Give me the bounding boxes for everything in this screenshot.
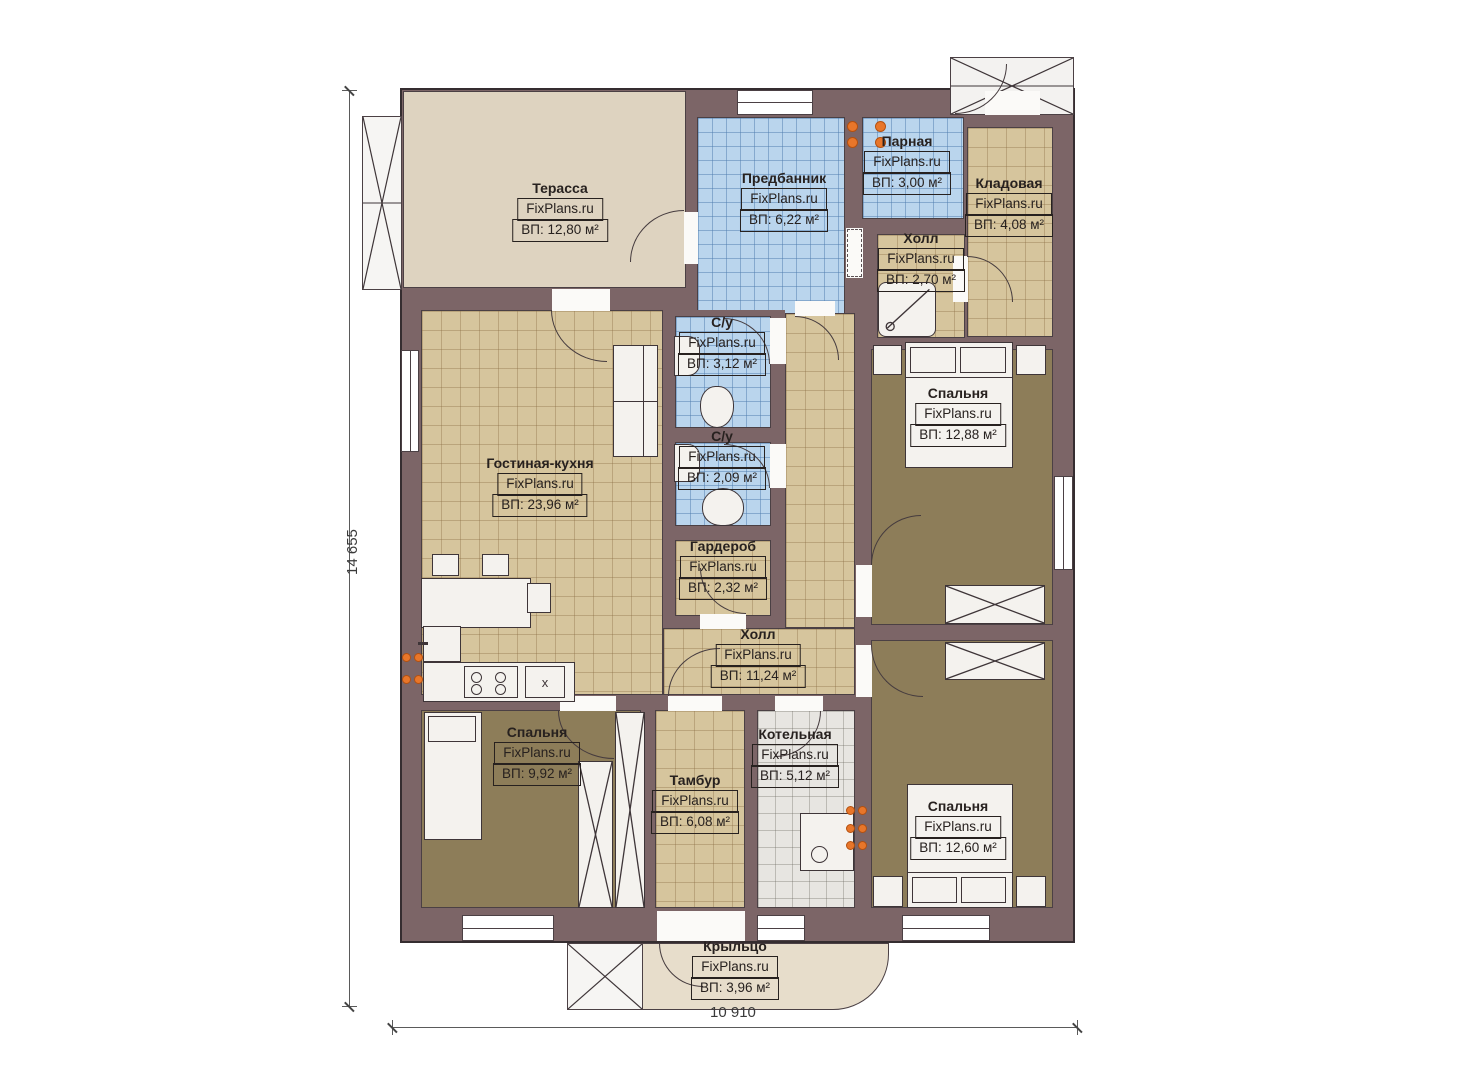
radiator-dot [414,675,423,684]
room-label-bedroom1: Спальня FixPlans.ru ВП: 12,88 м² [910,385,1006,447]
area-box: ВП: 12,80 м² [512,219,608,242]
sofa [613,345,658,457]
radiator-dot [846,841,855,850]
brand-box: FixPlans.ru [652,790,738,813]
brand-box: FixPlans.ru [517,198,603,221]
nightstand [873,345,902,375]
chair [527,583,551,613]
area-box: ВП: 11,24 м² [711,665,806,688]
floor-plan: x [0,0,1473,1080]
area-box: ВП: 12,88 м² [910,424,1006,447]
brand-box: FixPlans.ru [494,742,580,765]
window-right-bedroom1 [1054,476,1073,570]
room-label-predbannik: Предбанник FixPlans.ru ВП: 6,22 м² [740,170,828,232]
area-box: ВП: 2,09 м² [678,467,766,490]
door-terrace-living [552,289,610,311]
area-box: ВП: 3,12 м² [678,353,766,376]
wardrobe [945,585,1045,624]
corridor-floor [785,313,855,628]
area-box: ВП: 4,08 м² [965,214,1053,237]
room-name: Холл [903,230,938,246]
window-bottom-bedroom3 [902,915,990,941]
door-tambur [668,696,722,711]
brand-box: FixPlans.ru [715,644,801,667]
radiator-dot [858,841,867,850]
brand-box: FixPlans.ru [864,151,950,174]
room-label-terrace: Терасса FixPlans.ru ВП: 12,80 м² [512,180,608,242]
toilet [702,488,744,526]
room-label-su1: С/у FixPlans.ru ВП: 3,12 м² [678,314,766,376]
brand-box: FixPlans.ru [692,956,778,979]
room-name: Спальня [507,724,567,740]
radiator-dot [858,824,867,833]
room-label-kotelnaya: Котельная FixPlans.ru ВП: 5,12 м² [751,726,839,788]
nightstand [873,876,903,907]
brand-box: FixPlans.ru [752,744,838,767]
room-name: Гостиная-кухня [486,455,593,471]
area-box: ВП: 2,70 м² [877,269,965,292]
entrance-door-opening [657,911,745,941]
area-box: ВП: 12,60 м² [910,837,1006,860]
chair [432,554,459,576]
door-predbannik-corridor [795,301,835,316]
stove [464,666,518,698]
pillow [961,877,1006,903]
room-name: Котельная [758,726,831,742]
room-label-garderob: Гардероб FixPlans.ru ВП: 2,32 м² [679,538,767,600]
door-predbannik-parnaya [846,228,863,278]
room-name: Спальня [928,385,988,401]
sauna-stove-dot [875,121,886,132]
nightstand [1016,345,1046,375]
brand-box: FixPlans.ru [679,332,765,355]
room-label-bedroom2: Спальня FixPlans.ru ВП: 9,92 м² [493,724,581,786]
brand-box: FixPlans.ru [966,193,1052,216]
brand-box: FixPlans.ru [741,188,827,211]
room-name: Парная [882,133,933,149]
window-bottom-bedroom2 [462,915,554,941]
area-box: ВП: 23,96 м² [492,494,588,517]
brand-box: FixPlans.ru [915,403,1001,426]
pillow [910,347,956,373]
dining-table [421,578,531,628]
radiator-dot [414,653,423,662]
wardrobe [945,642,1045,680]
room-name: Крыльцо [703,938,767,954]
pillow [428,716,476,742]
door-bedroom1 [856,565,872,617]
wardrobe [615,712,645,908]
room-label-kladovaya: Кладовая FixPlans.ru ВП: 4,08 м² [965,175,1053,237]
area-box: ВП: 5,12 м² [751,765,839,788]
area-box: ВП: 9,92 м² [493,763,581,786]
brand-box: FixPlans.ru [497,473,583,496]
room-label-living: Гостиная-кухня FixPlans.ru ВП: 23,96 м² [486,455,593,517]
window-top-predbannik [737,90,813,115]
radiator-dot [858,806,867,815]
door-bedroom3 [856,645,872,697]
brand-box: FixPlans.ru [878,248,964,271]
radiator-dot [846,824,855,833]
room-label-parnaya: Парная FixPlans.ru ВП: 3,00 м² [863,133,951,195]
room-label-hall-small: Холл FixPlans.ru ВП: 2,70 м² [877,230,965,292]
room-name: Спальня [928,798,988,814]
door-su2 [770,444,786,488]
dimension-line-bottom [392,1027,1078,1028]
sauna-stove-dot [847,137,858,148]
radiator-dot [846,806,855,815]
room-name: Терасса [532,180,588,196]
room-name: С/у [711,428,733,444]
pillow [912,877,957,903]
window-left-living [401,350,419,452]
terrace-side-steps [362,116,402,290]
radiator-dot [402,675,411,684]
room-label-porch: Крыльцо FixPlans.ru ВП: 3,96 м² [691,938,779,1000]
kitchen-sink [423,626,461,662]
dimension-label-bottom: 10 910 [710,1004,756,1021]
wardrobe [578,761,613,908]
brand-box: FixPlans.ru [679,446,765,469]
toilet [700,386,734,428]
door-kotelnaya [775,696,823,711]
room-label-bedroom3: Спальня FixPlans.ru ВП: 12,60 м² [910,798,1006,860]
room-label-hall-main: Холл FixPlans.ru ВП: 11,24 м² [711,626,806,688]
area-box: ВП: 3,96 м² [691,977,779,1000]
room-name: С/у [711,314,733,330]
room-name: Гардероб [690,538,756,554]
brand-box: FixPlans.ru [680,556,766,579]
area-box: ВП: 2,32 м² [679,577,767,600]
nightstand [1016,876,1046,907]
bed [424,712,482,840]
area-box: ВП: 6,08 м² [651,811,739,834]
room-name: Холл [740,626,775,642]
pillow [960,347,1006,373]
chair [482,554,509,576]
room-name: Предбанник [742,170,826,186]
area-box: ВП: 6,22 м² [740,209,828,232]
brand-box: FixPlans.ru [915,816,1001,839]
porch-steps [567,943,643,1010]
dimension-label-left: 14 655 [344,529,361,575]
door-su1 [770,318,786,364]
room-name: Тамбур [670,772,721,788]
room-label-tambur: Тамбур FixPlans.ru ВП: 6,08 м² [651,772,739,834]
dishwasher-label: x [542,675,549,690]
radiator-dot [402,653,411,662]
dishwasher: x [525,666,565,698]
sauna-stove-dot [847,121,858,132]
area-box: ВП: 3,00 м² [863,172,951,195]
room-label-su2: С/у FixPlans.ru ВП: 2,09 м² [678,428,766,490]
door-terrace-predbannik [684,212,698,264]
room-name: Кладовая [975,175,1042,191]
